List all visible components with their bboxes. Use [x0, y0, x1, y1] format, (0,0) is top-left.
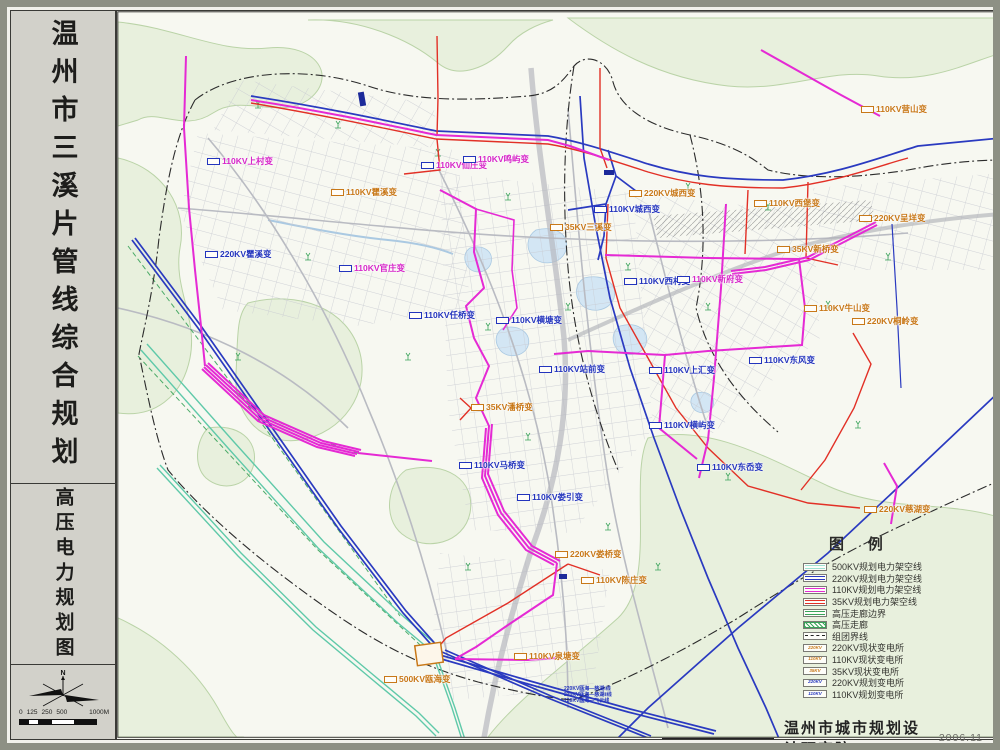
- legend-swatch-icon: 110KV: [803, 690, 827, 698]
- compass-icon: N: [25, 666, 103, 708]
- line-name-annotations: 220KV瓯海—慈湖Ⅰ线220KV瓯海—慈湖Ⅱ线220KV瓯海—飞云线: [564, 686, 612, 704]
- substation-label: 110KV营山变: [861, 105, 927, 114]
- legend-item: 组团界线: [803, 631, 1000, 643]
- substation-icon: [629, 190, 642, 197]
- map-sheet: 温州市三溪片管线综合规划 高压电力规划图 N 01252505001000M: [0, 0, 1000, 750]
- scale-label: 250: [41, 709, 52, 716]
- substation-label: 220KV城西变: [629, 189, 696, 198]
- title-block: 温州市城市规划设计研究院 2006.11: [662, 717, 993, 750]
- legend-swatch-icon: [803, 632, 827, 640]
- substation-label: 110KV娄引变: [517, 493, 583, 502]
- ouhai-station-site: [415, 642, 444, 665]
- svg-text:N: N: [60, 670, 65, 677]
- substation-icon: [463, 156, 476, 163]
- substation-label: 110KV东岙变: [697, 463, 763, 472]
- legend: 图 例 500KV规划电力架空线220KV规划电力架空线110KV规划电力架空线…: [803, 533, 1000, 700]
- substation-label: 110KV鸣屿变: [463, 155, 529, 164]
- scale-label: 125: [27, 709, 38, 716]
- substation-label: 220KV慈湖变: [864, 505, 931, 514]
- legend-item: 220KV规划电力架空线: [803, 573, 1000, 585]
- legend-item: 500KV规划电力架空线: [803, 561, 1000, 573]
- substation-icon: [496, 317, 509, 324]
- legend-swatch-icon: [803, 598, 827, 606]
- substation-label: 110KV站前变: [539, 365, 605, 374]
- substation-label: 110KV瞿溪变: [331, 188, 397, 197]
- substation-icon: [550, 224, 563, 231]
- map-canvas: 110KV上村变110KV仙庄变110KV瞿溪变220KV瞿溪变110KV官庄变…: [116, 10, 1000, 740]
- substation-icon: [205, 251, 218, 258]
- substation-label: 220KV桐岭变: [852, 317, 919, 326]
- design-institute: 温州市城市规划设计研究院: [784, 717, 931, 750]
- substation-icon: [864, 506, 877, 513]
- legend-item: 220KV220KV现状变电所: [803, 642, 1000, 654]
- substation-icon: [384, 676, 397, 683]
- legend-items: 500KV规划电力架空线220KV规划电力架空线110KV规划电力架空线35KV…: [803, 561, 1000, 700]
- substation-label: 110KV牛山变: [804, 304, 870, 313]
- legend-swatch-icon: 35KV: [803, 667, 827, 675]
- substation-label: 220KV娄桥变: [555, 550, 622, 559]
- substation-label: 220KV瞿溪变: [205, 250, 272, 259]
- legend-swatch-icon: [803, 574, 827, 582]
- substation-label: 110KV马桥变: [459, 461, 525, 470]
- legend-swatch-icon: [803, 609, 827, 617]
- footer-rule-left: [662, 738, 774, 739]
- legend-item: 35KV35KV现状变电所: [803, 665, 1000, 677]
- substation-label: 110KV东风变: [749, 356, 815, 365]
- substation-icon: [804, 305, 817, 312]
- legend-item: 高压走廊边界: [803, 607, 1000, 619]
- substation-icon: [749, 357, 762, 364]
- substation-label: 220KV呈垟变: [859, 214, 926, 223]
- legend-item: 35KV规划电力架空线: [803, 596, 1000, 608]
- substation-icon: [331, 189, 344, 196]
- substation-label: 110KV泉塘变: [514, 652, 580, 661]
- substation-label: 110KV上汇变: [649, 366, 715, 375]
- line-name-label: 220KV瓯海—飞云线: [564, 698, 612, 704]
- substation-label: 35KV三溪变: [550, 223, 612, 232]
- substation-icon: [421, 162, 434, 169]
- legend-swatch-icon: 220KV: [803, 679, 827, 687]
- substation-icon: [471, 404, 484, 411]
- substation-icon: [594, 206, 607, 213]
- substation-icon: [852, 318, 865, 325]
- substation-icon: [649, 367, 662, 374]
- substation-icon: [861, 106, 874, 113]
- sheet-subtitle-box: 高压电力规划图: [11, 484, 115, 665]
- substation-icon: [409, 312, 422, 319]
- legend-item: 110KV110KV规划变电所: [803, 689, 1000, 701]
- legend-swatch-icon: 110KV: [803, 656, 827, 664]
- substation-icon: [539, 366, 552, 373]
- substation-label: 110KV城西变: [594, 205, 660, 214]
- legend-item: 高压走廊: [803, 619, 1000, 631]
- substation-icon: [339, 265, 352, 272]
- scale-label: 500: [56, 709, 67, 716]
- sheet-title: 温州市三溪片管线综合规划: [44, 19, 83, 475]
- substation-icon: [459, 462, 472, 469]
- substation-icon: [754, 200, 767, 207]
- legend-item: 220KV220KV规划变电所: [803, 677, 1000, 689]
- substation-icon: [677, 276, 690, 283]
- substation-icon: [207, 158, 220, 165]
- substation-label: 35KV新桥变: [777, 245, 839, 254]
- sheet-title-box: 温州市三溪片管线综合规划: [11, 11, 115, 484]
- substation-icon: [581, 577, 594, 584]
- plan-date: 2006.11: [939, 732, 983, 744]
- legend-swatch-icon: [803, 563, 827, 571]
- legend-item: 110KV110KV现状变电所: [803, 654, 1000, 666]
- substation-label: 110KV官庄变: [339, 264, 405, 273]
- scale-bar: [19, 719, 97, 725]
- substation-icon: [514, 653, 527, 660]
- substation-icon: [555, 551, 568, 558]
- sheet-subtitle: 高压电力规划图: [50, 487, 77, 662]
- legend-swatch-icon: 220KV: [803, 644, 827, 652]
- substation-label: 110KV陈庄变: [581, 576, 647, 585]
- legend-swatch-icon: [803, 621, 827, 629]
- substation-label: 110KV西堡变: [754, 199, 820, 208]
- substation-label: 110KV横塘变: [496, 316, 562, 325]
- legend-swatch-icon: [803, 586, 827, 594]
- compass-scale-box: N 01252505001000M: [11, 665, 115, 737]
- substation-label: 110KV任桥变: [409, 311, 475, 320]
- legend-item: 110KV规划电力架空线: [803, 584, 1000, 596]
- substation-label: 500KV瓯海变: [384, 675, 451, 684]
- substation-label: 110KV横屿变: [649, 421, 715, 430]
- substation-icon: [697, 464, 710, 471]
- legend-label: 110KV规划变电所: [832, 688, 903, 701]
- sidebar: 温州市三溪片管线综合规划 高压电力规划图 N 01252505001000M: [10, 10, 116, 740]
- substation-icon: [777, 246, 790, 253]
- scale-labels: 01252505001000M: [19, 709, 111, 716]
- substation-label: 110KV上村变: [207, 157, 273, 166]
- substation-label: 110KV新府变: [677, 275, 743, 284]
- scale-label: 1000M: [89, 709, 109, 716]
- substation-icon: [517, 494, 530, 501]
- scale-label: 0: [19, 709, 23, 716]
- substation-icon: [859, 215, 872, 222]
- legend-title: 图 例: [829, 533, 1000, 554]
- substation-icon: [649, 422, 662, 429]
- substation-label: 35KV潘桥变: [471, 403, 533, 412]
- substation-icon: [624, 278, 637, 285]
